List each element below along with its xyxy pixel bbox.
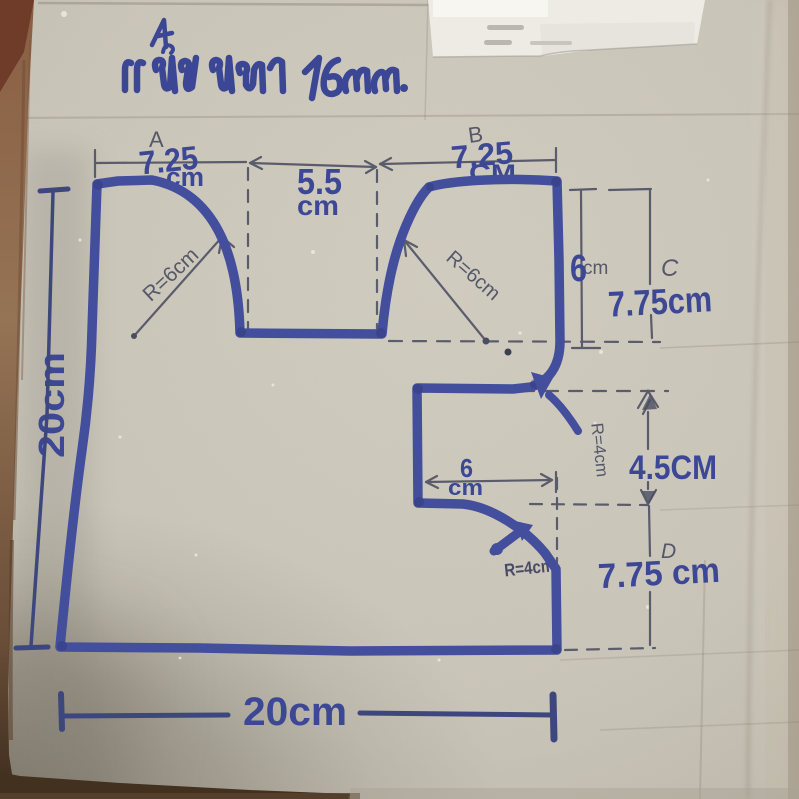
svg-text:4.5CM: 4.5CM: [629, 449, 717, 487]
svg-text:7.75cm: 7.75cm: [607, 278, 713, 324]
svg-text:20cm: 20cm: [243, 690, 347, 734]
svg-text:20cm: 20cm: [31, 352, 72, 458]
svg-text:cm: cm: [297, 190, 339, 221]
svg-text:cm: cm: [448, 475, 483, 500]
svg-text:6: 6: [570, 248, 587, 290]
svg-text:C: C: [661, 255, 679, 282]
svg-text:7.75 cm: 7.75 cm: [597, 551, 721, 596]
